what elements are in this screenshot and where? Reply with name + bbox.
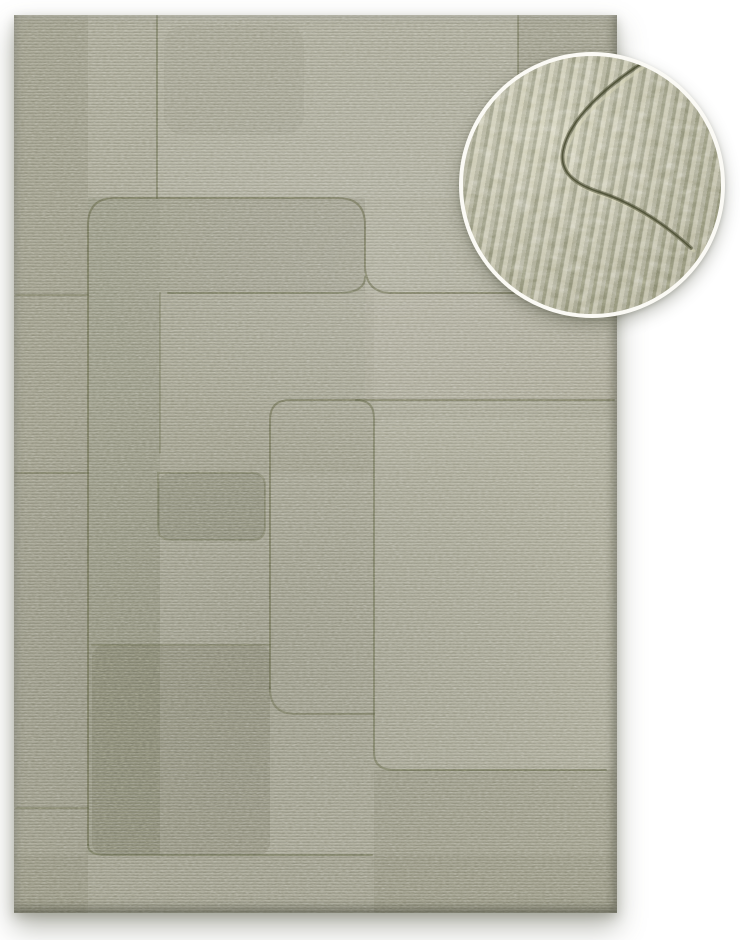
texture-closeup-inset [459,52,725,318]
product-photo [0,0,740,940]
texture-closeup-detail [463,56,721,314]
yarn-fuzz-texture [463,56,721,314]
